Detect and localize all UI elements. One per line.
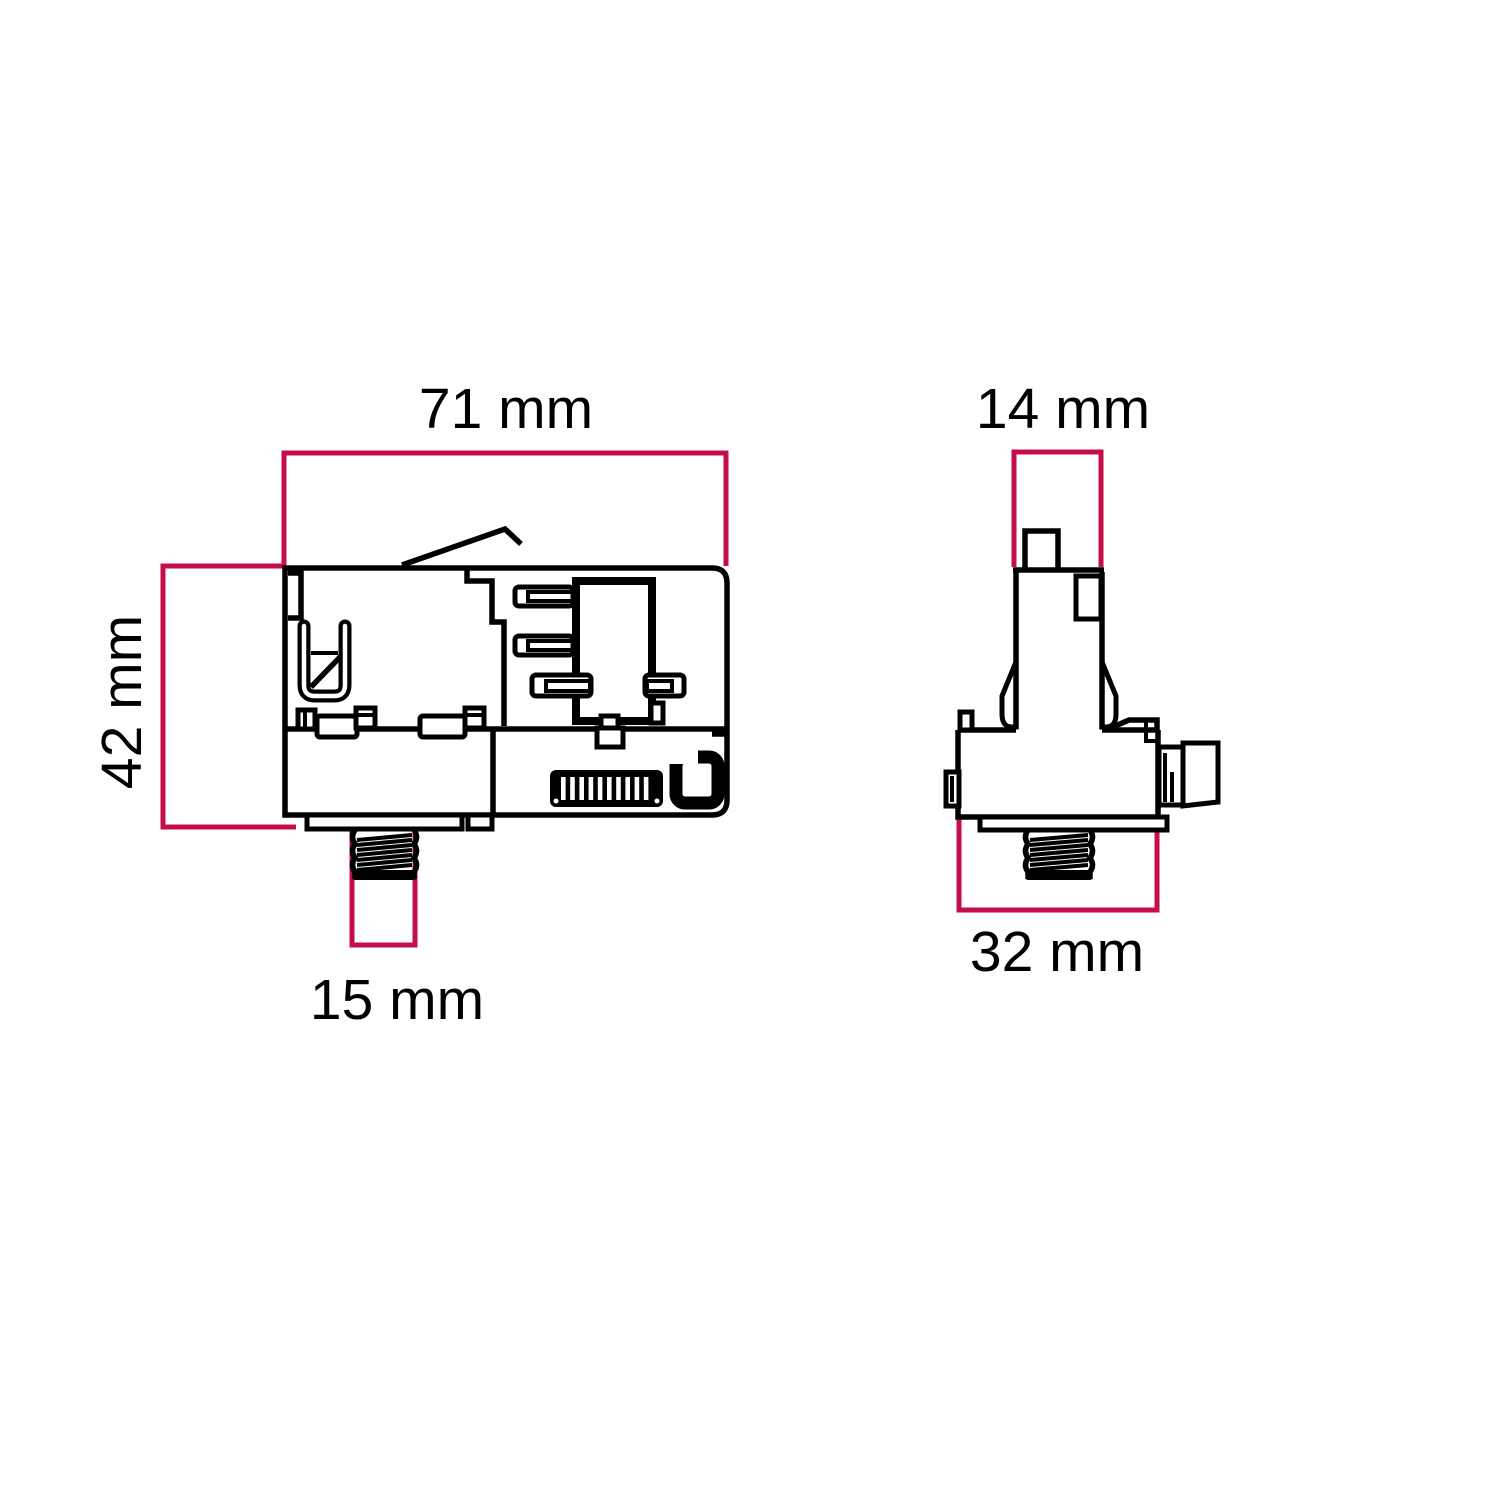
stem-side-window <box>1076 576 1101 619</box>
technical-drawing-canvas: 71 mm 42 mm 15 mm 14 mm 32 mm <box>0 0 1500 1500</box>
stem-top-nub <box>1025 531 1058 569</box>
front-top-tab <box>960 712 972 730</box>
seam-block-group-right <box>420 708 484 737</box>
prong-2 <box>515 636 573 655</box>
dim-bracket-width-71mm <box>284 453 726 566</box>
seam-tab <box>465 708 484 728</box>
dim-label-14mm: 14 mm <box>976 377 1150 441</box>
seam-slider <box>317 716 357 737</box>
release-lever <box>402 529 521 565</box>
knob-outer-block <box>1183 743 1218 806</box>
threaded-stud-side <box>353 830 417 880</box>
seam-slider <box>420 716 465 737</box>
contact-column <box>576 581 652 721</box>
dim-label-71mm: 71 mm <box>419 377 593 441</box>
front-bottom-flange <box>980 817 1167 830</box>
front-view-drawing <box>946 531 1218 880</box>
track-adapter-dimension-drawing: 71 mm 42 mm 15 mm 14 mm 32 mm <box>0 0 1500 1500</box>
corner-hook-tab <box>669 734 725 803</box>
grille-pin-hole <box>655 799 660 804</box>
column-latch-box <box>597 728 623 747</box>
ribbed-grille <box>550 770 663 807</box>
seam-block-group-left <box>298 708 375 737</box>
divider-wall <box>467 570 504 726</box>
dim-bracket-height-42mm <box>163 566 296 827</box>
side-knob-assembly <box>1159 743 1218 806</box>
left-wall-slot <box>288 573 301 618</box>
threaded-stud-front <box>1026 830 1093 880</box>
front-body-outline <box>958 730 1158 817</box>
stud-tip <box>1026 870 1092 880</box>
dim-label-32mm: 32 mm <box>970 920 1144 984</box>
grille-pin-hole <box>554 799 559 804</box>
seam-tab <box>356 708 375 728</box>
u-clip-diagonal-line <box>311 656 341 687</box>
stud-thread-lines <box>1030 835 1088 870</box>
bottom-flange-plate <box>307 815 462 829</box>
bottom-flange-tab <box>468 815 492 829</box>
stud-tip <box>353 870 416 880</box>
dim-label-15mm: 15 mm <box>310 968 484 1032</box>
prong-1 <box>515 587 573 606</box>
stud-thread-lines <box>357 835 412 870</box>
dim-label-42mm: 42 mm <box>90 615 154 789</box>
side-view-drawing <box>285 529 727 880</box>
prong-4-leg <box>651 703 663 723</box>
